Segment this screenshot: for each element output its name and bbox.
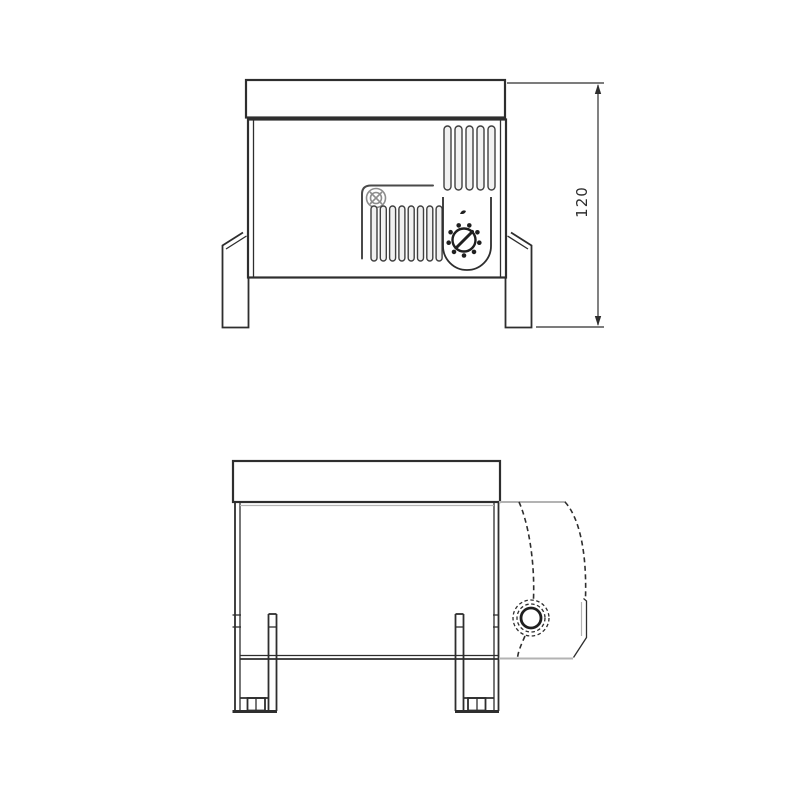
vent-slot bbox=[466, 126, 473, 190]
vent-slot bbox=[427, 206, 433, 261]
knob-tick-dot bbox=[446, 240, 451, 245]
dimension-arrow-top bbox=[595, 84, 601, 94]
upper-vent-grille bbox=[444, 126, 495, 190]
knob-tick-dot bbox=[462, 253, 467, 258]
front-left-leg bbox=[223, 233, 249, 328]
side-right-leg bbox=[455, 614, 499, 712]
vent-slot bbox=[455, 126, 462, 190]
front-top-plate bbox=[246, 80, 505, 118]
front-right-leg-edge-line bbox=[508, 236, 529, 249]
knob-tick-dot bbox=[456, 223, 461, 228]
vent-slot bbox=[436, 206, 442, 261]
knob-tick-dot bbox=[448, 230, 453, 235]
front-view: 120 bbox=[223, 80, 605, 328]
knob-tick-dot bbox=[467, 223, 472, 228]
side-control-housing bbox=[499, 502, 587, 659]
vent-slot bbox=[408, 206, 414, 261]
height-dimension: 120 bbox=[507, 83, 604, 327]
housing-inner-arc-top bbox=[519, 502, 534, 599]
front-right-leg bbox=[506, 233, 532, 328]
vent-slot bbox=[444, 126, 451, 190]
vent-slot bbox=[399, 206, 405, 261]
indicator-mark bbox=[460, 210, 466, 214]
vent-slot bbox=[418, 206, 424, 261]
housing-tab bbox=[574, 599, 587, 658]
knob-tick-dot bbox=[477, 240, 482, 245]
vent-slot bbox=[390, 206, 396, 261]
knob-tick-dot bbox=[472, 250, 477, 255]
lower-vent-grille bbox=[371, 206, 442, 261]
knob-tick-dot bbox=[475, 230, 480, 235]
side-top-plate bbox=[233, 461, 500, 502]
thermostat-knob bbox=[446, 210, 481, 257]
dimension-label: 120 bbox=[573, 186, 591, 218]
vent-slot bbox=[477, 126, 484, 190]
vent-slot bbox=[380, 206, 386, 261]
dimension-arrow-bottom bbox=[595, 316, 601, 326]
screw-icon bbox=[367, 189, 386, 208]
housing-outer-arc bbox=[565, 502, 586, 598]
technical-drawing-page: 120 bbox=[0, 0, 800, 800]
knob-tick-dot bbox=[452, 250, 457, 255]
side-knob bbox=[513, 600, 549, 636]
side-left-leg bbox=[233, 614, 278, 712]
side-view bbox=[233, 461, 587, 712]
drawing-canvas: 120 bbox=[0, 0, 800, 800]
front-left-leg-edge-line bbox=[226, 236, 247, 249]
side-knob-hub bbox=[521, 608, 541, 628]
vent-slot bbox=[371, 206, 377, 261]
vent-slot bbox=[488, 126, 495, 190]
housing-inner-arc-bottom bbox=[518, 636, 526, 658]
